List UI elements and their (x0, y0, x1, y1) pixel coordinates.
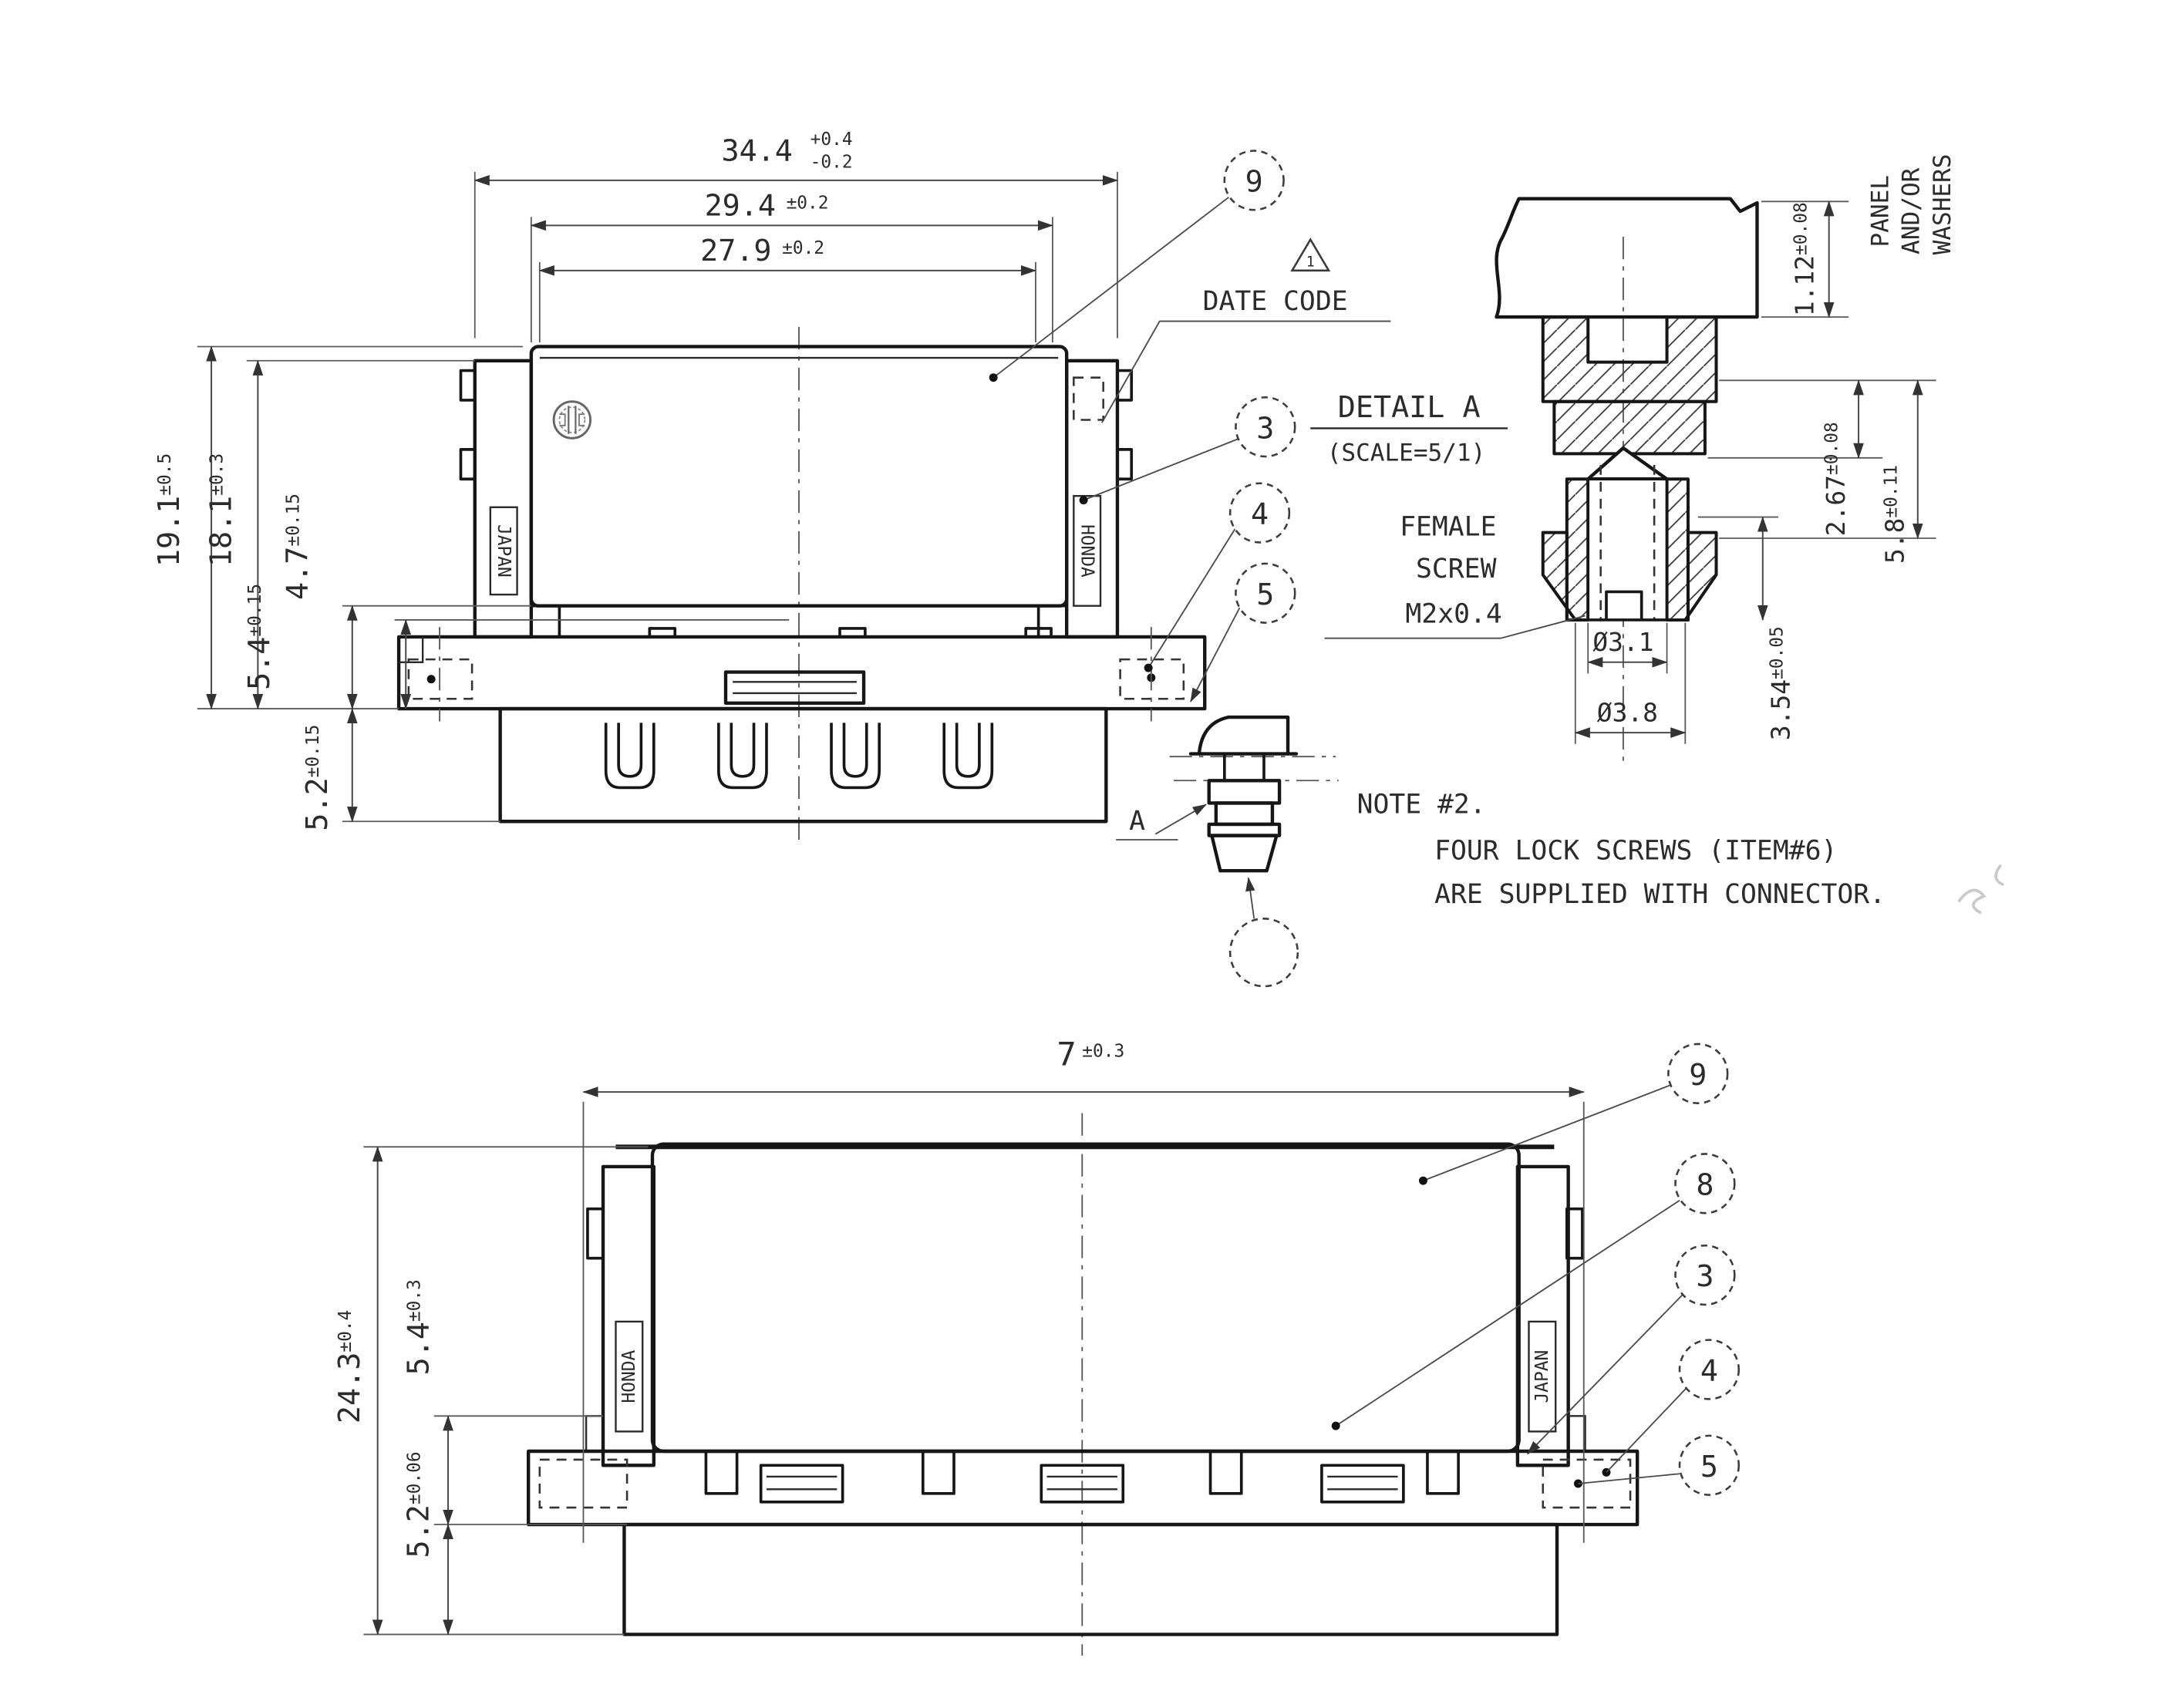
dim-58: 5.8±0.11 (1880, 465, 1910, 564)
standoff-mid-block (1554, 402, 1705, 454)
left-clip-lower (460, 450, 474, 479)
note-block: NOTE #2. FOUR LOCK SCREWS (ITEM#6) ARE S… (1357, 789, 2004, 913)
date-code-window (1073, 378, 1103, 420)
balloon-3-num: 3 (1256, 411, 1274, 446)
dim-344-tol-up: +0.4 (810, 130, 853, 150)
bottom-shroud (624, 1524, 1557, 1635)
date-code-label: DATE CODE (1203, 286, 1348, 317)
detail-a-scale: (SCALE=5/1) (1327, 439, 1486, 467)
bottom-balloons: 9 8 3 4 5 (1332, 1044, 1739, 1495)
left-clip-upper (460, 371, 474, 400)
dim-181: 18.1±0.3 (204, 453, 239, 567)
watermark-scribble (1959, 865, 2003, 913)
bottom-body (652, 1144, 1519, 1451)
hk-logo-icon (554, 402, 591, 439)
dim-354: 3.54±0.05 (1766, 626, 1796, 740)
dim-279: 27.9 (700, 234, 771, 268)
dim-191: 19.1±0.5 (152, 453, 187, 567)
dim-dia38: Ø3.8 (1597, 698, 1658, 728)
revision-triangle-num: 1 (1306, 254, 1315, 270)
balloon-4-num: 4 (1251, 497, 1269, 532)
bottom-left-flange (603, 1167, 654, 1465)
top-width-dims: 34.4 +0.4 -0.2 29.4 ±0.2 27.9 ±0.2 (475, 130, 1117, 342)
female-screw-l3: M2x0.4 (1405, 599, 1501, 630)
detail-a: DETAIL A (SCALE=5/1) 1.12±0.08 PANEL AND… (1310, 154, 1956, 768)
view-a-label: A (1129, 806, 1145, 837)
female-screw-l2: SCREW (1416, 554, 1497, 584)
hood-step-left (531, 606, 560, 637)
honda-label: HONDA (1077, 524, 1097, 578)
lock-screw-view: A (1116, 717, 1339, 986)
screw-head (1199, 717, 1288, 754)
dim-52t: 5.2±0.15 (300, 725, 335, 831)
view-a-arrow (1155, 804, 1206, 834)
bottom-left-clip (588, 1209, 603, 1258)
standoff-upper-block (1543, 317, 1717, 402)
connector-drawing: JAPAN HONDA (0, 0, 2177, 1708)
balloon-5-num: 5 (1256, 578, 1274, 612)
top-balloons: 9 1 DATE CODE 3 4 5 (989, 151, 1391, 702)
note-line-1: NOTE #2. (1357, 789, 1486, 820)
drawing-sheet: JAPAN HONDA (0, 0, 2177, 1708)
dim-dia31: Ø3.1 (1592, 627, 1653, 657)
standoff-left-wall (1567, 479, 1588, 620)
dim-7: 7 (1056, 1035, 1076, 1073)
plate-bump-2 (840, 628, 865, 637)
dim-112: 1.12±0.08 (1790, 202, 1820, 316)
screw-tip-arrow (1249, 878, 1254, 918)
panel-section (1496, 199, 1757, 317)
screw-neck (1225, 754, 1264, 780)
dim-294: 29.4 (705, 189, 776, 224)
panel-note: PANEL AND/OR WASHERS (1866, 154, 1956, 255)
standoff-right-flange (1685, 533, 1716, 620)
plate-center-slot-lines (733, 682, 857, 693)
right-clip-lower (1117, 450, 1131, 479)
bottom-height-dims: 24.3±0.4 5.4±0.3 5.2±0.06 (332, 1147, 649, 1634)
bottom-balloon-5-num: 5 (1700, 1450, 1718, 1484)
mating-body (500, 709, 1107, 821)
dim-267: 2.67±0.08 (1821, 422, 1851, 536)
dim-243: 24.3±0.4 (332, 1310, 367, 1423)
dim-52b: 5.2±0.06 (401, 1451, 436, 1558)
detail-a-title: DETAIL A (1338, 390, 1481, 425)
dim-54b: 5.4±0.3 (401, 1279, 436, 1375)
dim-7-tol: ±0.3 (1082, 1041, 1124, 1061)
bottom-view: HONDA JAPAN 7 ±0.3 (332, 1035, 1739, 1656)
dim-344-tol-dn: -0.2 (810, 152, 853, 172)
screw-tip (1212, 836, 1276, 871)
screw-ring-2 (1216, 803, 1272, 824)
dim-47: 4.7±0.15 (280, 494, 315, 600)
dim-344: 34.4 (722, 133, 793, 168)
bottom-balloon-8-num: 8 (1696, 1167, 1714, 1202)
bottom-balloon-4-num: 4 (1700, 1354, 1718, 1389)
top-view: JAPAN HONDA (152, 130, 1390, 845)
bottom-right-foot (1569, 1416, 1586, 1451)
plate-bump-1 (649, 628, 675, 637)
bottom-plate (528, 1451, 1637, 1524)
dim-279-tol: ±0.2 (782, 238, 824, 258)
dim-54t: 5.4±0.15 (242, 584, 277, 690)
top-height-dims: 19.1±0.5 18.1±0.3 4.7±0.15 5.4±0.15 5.2±… (152, 346, 789, 830)
screw-balloon-arc (1230, 918, 1298, 986)
screw-ring-1 (1209, 780, 1279, 803)
bottom-balloon-3-num: 3 (1696, 1259, 1714, 1294)
balloon-9-num: 9 (1245, 164, 1263, 199)
standoff-right-wall (1667, 479, 1688, 620)
dim-294-tol: ±0.2 (787, 193, 829, 213)
screw-hole-left-dot (427, 675, 436, 683)
bottom-japan-label: JAPAN (1532, 1350, 1552, 1403)
bottom-honda-label: HONDA (619, 1350, 639, 1403)
bottom-left-foot (586, 1416, 603, 1451)
female-screw-l1: FEMALE (1400, 511, 1496, 542)
note-line-2: FOUR LOCK SCREWS (ITEM#6) (1434, 836, 1837, 867)
note-line-3: ARE SUPPLIED WITH CONNECTOR. (1434, 879, 1885, 910)
japan-label: JAPAN (494, 524, 514, 578)
bottom-balloon-9-num: 9 (1689, 1058, 1707, 1093)
plate-center-slot (726, 672, 864, 703)
